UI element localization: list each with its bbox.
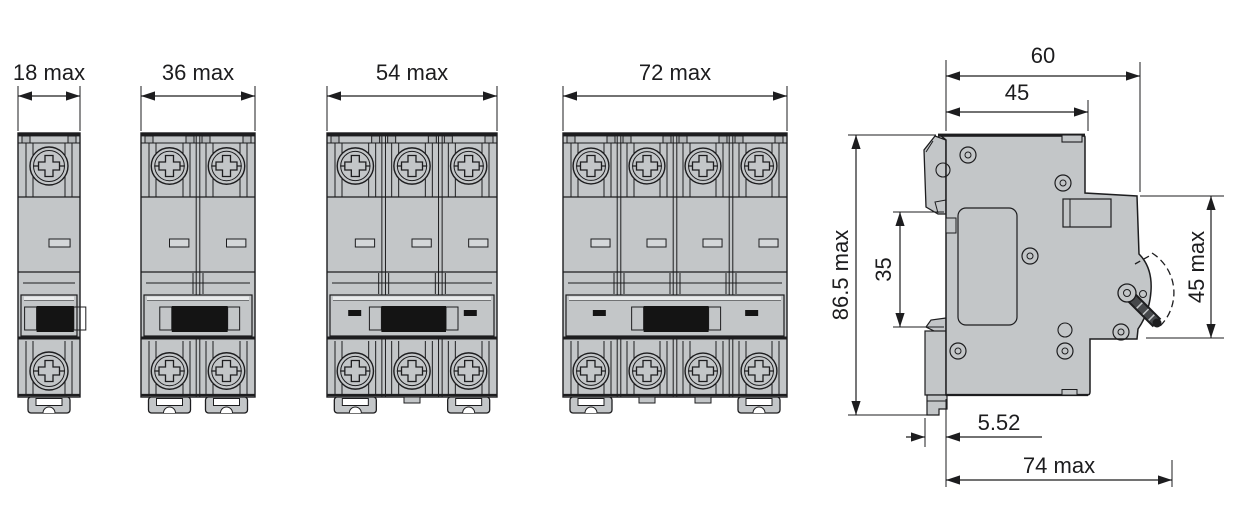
label-notch: [227, 239, 246, 247]
dimension-arrow: [946, 475, 960, 484]
width-dimension-label: 36 max: [162, 60, 234, 85]
top-tab: [428, 136, 436, 143]
dim-din-rail: 35: [871, 257, 896, 281]
tab-slot: [342, 399, 368, 406]
dimension-arrow: [895, 212, 904, 226]
dim-front-height: 45 max: [1184, 231, 1209, 303]
din-clip-tab: [149, 397, 191, 413]
front-view-4-pole: 72 max: [563, 60, 787, 413]
terminal-screw-icon: [151, 353, 187, 389]
bottom-stub: [404, 397, 420, 403]
top-tab: [663, 136, 671, 143]
dimension-arrow: [483, 91, 497, 100]
top-tab: [145, 136, 153, 143]
carriage-highlight: [569, 297, 781, 301]
dimension-arrow: [1206, 324, 1215, 338]
toggle-handle: [644, 306, 709, 332]
dim-max-depth: 74 max: [1023, 453, 1095, 478]
din-clip-tab: [448, 397, 490, 413]
top-tab: [719, 136, 727, 143]
dimension-arrow: [327, 91, 341, 100]
front-view-2-pole: 36 max: [141, 60, 255, 413]
dimension-arrow: [895, 313, 904, 327]
tab-slot: [578, 399, 604, 406]
terminal-screw-icon: [629, 148, 665, 184]
dimension-arrow: [851, 135, 860, 149]
toggle-mark: [745, 310, 758, 316]
dimension-arrow: [946, 432, 960, 441]
carriage-base-line: [141, 337, 255, 340]
bottom-stub: [639, 397, 655, 403]
rail-stop: [946, 218, 956, 233]
label-notch: [703, 239, 722, 247]
dim-body-depth: 45: [1005, 80, 1029, 105]
terminal-screw-icon: [573, 353, 609, 389]
top-tab: [372, 136, 380, 143]
terminal-screw-icon: [337, 148, 373, 184]
dimension-arrow: [1074, 107, 1088, 116]
terminal-screw-icon: [151, 148, 187, 184]
side-view: [924, 134, 1174, 415]
toggle-mark: [348, 310, 361, 316]
dimension-arrow: [946, 107, 960, 116]
label-notch: [412, 239, 431, 247]
top-edge: [563, 133, 787, 136]
carriage-base-line: [563, 337, 787, 340]
label-notch: [591, 239, 610, 247]
top-tab: [243, 136, 251, 143]
din-clip-body: [925, 331, 946, 395]
top-tab: [331, 136, 339, 143]
tab-slot: [746, 399, 772, 406]
terminal-screw-icon: [208, 353, 244, 389]
label-notch: [170, 239, 189, 247]
top-tab: [1062, 135, 1082, 142]
dimension-arrow: [18, 91, 32, 100]
carriage-highlight: [147, 297, 249, 301]
dim-total-depth: 60: [1031, 43, 1055, 68]
terminal-screw-icon: [30, 147, 68, 185]
tab-slot: [36, 399, 62, 406]
front-view-1-pole: 18 max: [13, 60, 86, 413]
terminal-screw-icon: [685, 353, 721, 389]
carriage-base-line: [327, 337, 497, 340]
top-tab: [388, 136, 396, 143]
tab-slot: [456, 399, 482, 406]
top-tab: [186, 136, 194, 143]
top-tab: [679, 136, 687, 143]
dim-clip-offset: 5.52: [978, 410, 1021, 435]
terminal-screw-icon: [394, 148, 430, 184]
terminal-screw-icon: [629, 353, 665, 389]
tab-slot: [214, 399, 240, 406]
dimension-arrow: [141, 91, 155, 100]
terminal-screw-icon: [394, 353, 430, 389]
top-tab: [623, 136, 631, 143]
label-notch: [355, 239, 374, 247]
dimension-arrow: [946, 71, 960, 80]
din-clip-tab: [334, 397, 376, 413]
width-dimension-label: 72 max: [639, 60, 711, 85]
terminal-screw-icon: [573, 148, 609, 184]
bottom-stub: [695, 397, 711, 403]
carriage-highlight: [333, 297, 491, 301]
carriage-base-line: [18, 337, 80, 340]
terminal-screw-icon: [30, 352, 68, 390]
din-clip-tab: [738, 397, 780, 413]
top-tab: [202, 136, 210, 143]
label-notch: [759, 239, 778, 247]
dimension-arrow: [563, 91, 577, 100]
top-edge: [327, 133, 497, 136]
dimension-arrow: [911, 432, 925, 441]
dimension-arrow: [1206, 196, 1215, 210]
toggle-handle: [172, 306, 228, 332]
top-tab: [775, 136, 783, 143]
lever-pivot: [1118, 284, 1136, 302]
label-notch: [647, 239, 666, 247]
top-tab: [22, 136, 30, 143]
dimension-arrow: [1158, 475, 1172, 484]
top-tab: [567, 136, 575, 143]
terminal-screw-icon: [451, 148, 487, 184]
dimension-arrow: [851, 401, 860, 415]
dim-total-height: 86.5 max: [828, 230, 853, 321]
mcb-dimension-drawing: 18 max36 max54 max72 max604586.5 max3545…: [0, 0, 1235, 525]
lever-tip: [1153, 319, 1162, 328]
dimension-arrow: [1126, 71, 1140, 80]
top-tab: [444, 136, 452, 143]
terminal-screw-icon: [741, 148, 777, 184]
din-clip-foot: [927, 395, 947, 415]
toggle-mark: [464, 310, 477, 316]
bottom-tab: [1062, 390, 1077, 396]
carriage-highlight: [24, 297, 74, 301]
width-dimension-label: 54 max: [376, 60, 448, 85]
terminal-screw-icon: [451, 353, 487, 389]
dimension-arrow: [241, 91, 255, 100]
top-tab: [485, 136, 493, 143]
dimension-arrow: [66, 91, 80, 100]
label-notch: [49, 239, 70, 247]
terminal-screw-icon: [685, 148, 721, 184]
top-tab: [68, 136, 76, 143]
label-notch: [469, 239, 488, 247]
din-clip-tab: [570, 397, 612, 413]
toggle-mark: [593, 310, 606, 316]
dimension-arrow: [773, 91, 787, 100]
tab-slot: [157, 399, 183, 406]
diagram-canvas: 18 max36 max54 max72 max604586.5 max3545…: [0, 0, 1235, 525]
side-body: [940, 135, 1151, 395]
din-clip-tab: [206, 397, 248, 413]
front-view-3-pole: 54 max: [327, 60, 497, 413]
top-tab: [735, 136, 743, 143]
terminal-screw-icon: [337, 353, 373, 389]
toggle-handle: [381, 306, 446, 332]
terminal-screw-icon: [208, 148, 244, 184]
top-tab: [607, 136, 615, 143]
terminal-screw-icon: [741, 353, 777, 389]
din-clip-tab: [28, 397, 70, 413]
width-dimension-label: 18 max: [13, 60, 85, 85]
top-edge: [141, 133, 255, 136]
toggle-handle: [37, 306, 74, 332]
